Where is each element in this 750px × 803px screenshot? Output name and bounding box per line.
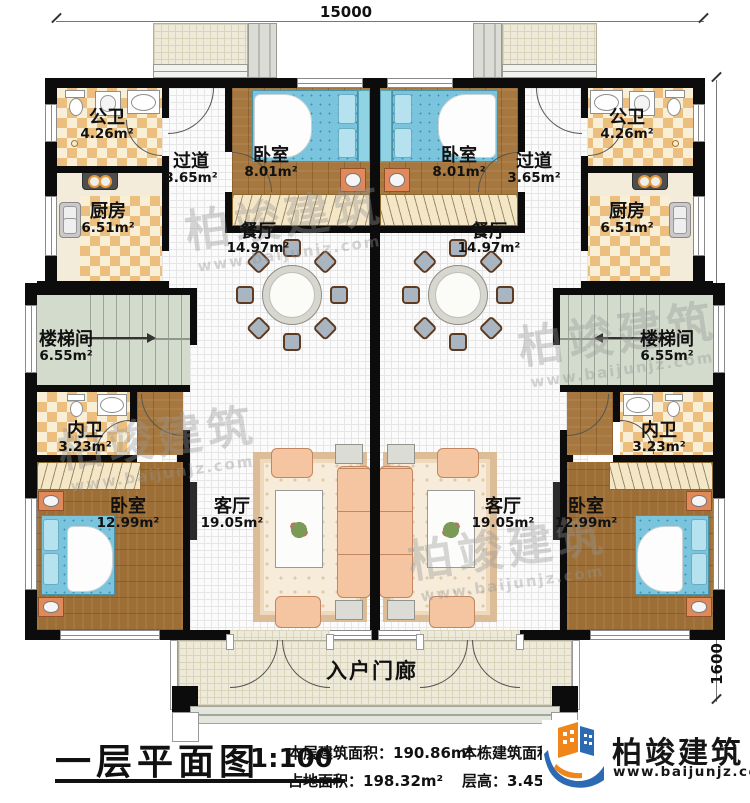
stairs [90, 295, 190, 385]
headboard-shelf [380, 90, 392, 162]
label-ensuite-right: 内卫3.23m² [632, 421, 685, 455]
bed-blanket [637, 526, 683, 592]
window [45, 104, 57, 142]
side-table [387, 600, 415, 620]
dining-chair [313, 316, 338, 341]
pillow [394, 94, 412, 124]
wardrobe [609, 462, 713, 490]
stat-land-area: 占地面积：198.32m² [288, 770, 443, 791]
wall [518, 88, 525, 152]
floor-drain-icon [71, 140, 78, 147]
wall [225, 88, 232, 152]
tv-icon [190, 482, 197, 540]
door-frame [226, 634, 234, 650]
label-stairwell-right: 楼梯间6.55m² [640, 330, 694, 364]
window [60, 630, 160, 640]
sink-icon [131, 94, 156, 111]
label-public-bath-right: 公卫4.26m² [600, 108, 653, 142]
label-living-left: 客厅19.05m² [201, 497, 264, 531]
dining-chair [236, 286, 254, 304]
nightstand-icon [384, 168, 410, 192]
pillow [394, 128, 412, 158]
window [713, 305, 725, 373]
pillow [691, 553, 707, 585]
sink-icon [100, 397, 124, 413]
label-bedroom-top-right: 卧室8.01m² [432, 146, 485, 180]
window [25, 498, 37, 590]
porch-step [190, 715, 560, 724]
toilet-icon [70, 401, 83, 417]
label-bedroom-bottom-right: 卧室12.99m² [555, 497, 618, 531]
label-bedroom-top-left: 卧室8.01m² [244, 146, 297, 180]
dining-chair [330, 286, 348, 304]
pillow [691, 519, 707, 551]
dining-table-set [240, 243, 344, 347]
label-living-right: 客厅19.05m² [472, 497, 535, 531]
window [693, 196, 705, 256]
wall [25, 288, 197, 295]
door-frame [326, 634, 334, 650]
terrace-right-steps [473, 23, 502, 78]
label-hallway-left: 过道3.65m² [164, 152, 217, 186]
dining-chair [412, 249, 437, 274]
wall [581, 166, 705, 173]
wall [581, 281, 713, 288]
brand-logo: 柏竣建筑 www.baijunjz.com [540, 718, 750, 802]
side-table [387, 444, 415, 464]
toilet-icon [667, 401, 680, 417]
bed-blanket [67, 526, 113, 592]
wall [560, 385, 620, 392]
toilet-tank-icon [665, 394, 683, 401]
stair-arrow-head [594, 333, 603, 343]
label-dining-right: 餐厅14.97m² [458, 222, 521, 256]
terrace-left-steps [248, 23, 277, 78]
door-frame [516, 634, 524, 650]
label-bedroom-bottom-left: 卧室12.99m² [97, 497, 160, 531]
dimension-total-width: 15000 [316, 3, 376, 21]
table-flowers-icon [439, 518, 463, 542]
window [297, 78, 363, 88]
label-kitchen-right: 厨房6.51m² [600, 202, 653, 236]
floor-drain-icon [672, 140, 679, 147]
dining-chair [496, 286, 514, 304]
wall [613, 385, 725, 392]
brand-logo-icon [542, 720, 608, 792]
wall [581, 88, 588, 118]
stair-arrow-head [147, 333, 156, 343]
label-kitchen-left: 厨房6.51m² [81, 202, 134, 236]
wall [130, 392, 137, 422]
toilet-tank-icon [67, 394, 85, 401]
window [25, 305, 37, 373]
armchair [275, 596, 321, 628]
window [45, 196, 57, 256]
headboard-shelf [358, 90, 370, 162]
door-opening [230, 630, 330, 640]
wall [37, 281, 169, 288]
terrace-left [153, 23, 248, 66]
armchair [271, 448, 313, 478]
sink-icon [626, 397, 650, 413]
round-dining-table [262, 265, 322, 325]
wall [183, 430, 190, 640]
stair-direction-arrow [85, 337, 147, 339]
dimension-line-top [56, 21, 704, 22]
label-stairwell-left: 楼梯间6.55m² [39, 330, 93, 364]
dining-chair [283, 333, 301, 351]
wardrobe [37, 462, 141, 490]
pillow [338, 94, 356, 124]
door-frame [416, 634, 424, 650]
dining-chair [246, 316, 271, 341]
window [693, 104, 705, 142]
nightstand-icon [686, 597, 712, 617]
label-hallway-right: 过道3.65m² [507, 152, 560, 186]
dining-chair [479, 316, 504, 341]
label-public-bath-left: 公卫4.26m² [80, 108, 133, 142]
nightstand-icon [38, 491, 64, 511]
nightstand-icon [340, 168, 366, 192]
side-table [335, 600, 363, 620]
armchair [429, 596, 475, 628]
stove-icon [632, 170, 668, 190]
toilet-tank-icon [665, 90, 685, 98]
plan-title: 一层平面图 [55, 733, 260, 785]
terrace-right-rail [502, 64, 597, 78]
dining-table-set [406, 243, 510, 347]
sofa [379, 466, 413, 598]
nightstand-icon [686, 491, 712, 511]
sofa [337, 466, 371, 598]
wall [130, 385, 190, 392]
wall [613, 392, 620, 422]
wall [25, 455, 137, 462]
label-ensuite-left: 内卫3.23m² [58, 421, 111, 455]
party-wall [372, 78, 380, 640]
wall [553, 288, 725, 295]
dining-chair [402, 286, 420, 304]
armchair [437, 448, 479, 478]
toilet-icon [667, 98, 681, 116]
pillow [338, 128, 356, 158]
wall [560, 430, 567, 640]
kitchen-sink-icon [59, 202, 81, 238]
pillow [43, 553, 59, 585]
dining-chair [412, 316, 437, 341]
wall [45, 166, 169, 173]
window [713, 498, 725, 590]
pillow [43, 519, 59, 551]
porch-step [190, 706, 560, 715]
dining-chair [449, 333, 467, 351]
wall [613, 455, 725, 462]
side-table [335, 444, 363, 464]
wall [190, 295, 197, 345]
window [387, 78, 453, 88]
label-dining-left: 餐厅14.97m² [227, 222, 290, 256]
kitchen-sink-icon [669, 202, 691, 238]
door-opening [420, 630, 520, 640]
label-porch: 入户门廊 [326, 660, 418, 683]
toilet-tank-icon [65, 90, 85, 98]
dimension-porch-depth: 1600 [708, 641, 726, 687]
wall [553, 295, 560, 345]
table-flowers-icon [287, 518, 311, 542]
dining-chair [313, 249, 338, 274]
wall [25, 385, 137, 392]
stove-icon [82, 170, 118, 190]
stat-floor-area: 本层建筑面积：190.86m² [288, 742, 473, 763]
nightstand-icon [38, 597, 64, 617]
brand-url: www.baijunjz.com [613, 764, 750, 780]
floor-plan-canvas: 15000 11800 1600 [0, 0, 750, 803]
terrace-left-rail [153, 64, 248, 78]
window [590, 630, 690, 640]
round-dining-table [428, 265, 488, 325]
terrace-right [502, 23, 597, 66]
